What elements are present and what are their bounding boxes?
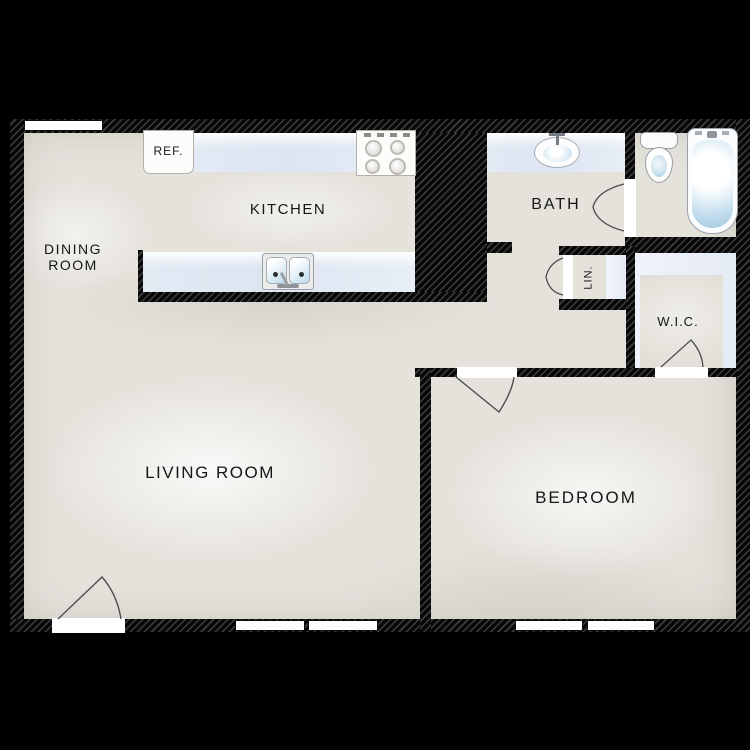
door-swing-arcs: [0, 0, 750, 750]
floor-plan: REF.: [0, 0, 750, 750]
dining-label-line1: DINING: [27, 241, 119, 257]
wic-door-swing: [661, 340, 703, 367]
entry-door-swing: [58, 577, 121, 619]
room-label-dining: DINING ROOM: [27, 241, 119, 273]
room-label-living: LIVING ROOM: [130, 463, 290, 483]
bedroom-door-swing: [456, 377, 514, 412]
room-label-linen: LIN.: [583, 248, 598, 308]
room-label-wic: W.I.C.: [638, 315, 718, 330]
linen-door-swing: [546, 258, 563, 295]
room-label-bath: BATH: [516, 196, 596, 214]
dining-label-line2: ROOM: [27, 257, 119, 273]
bath-door-swing: [593, 184, 624, 231]
room-label-bedroom: BEDROOM: [516, 488, 656, 508]
room-label-kitchen: KITCHEN: [218, 201, 358, 218]
